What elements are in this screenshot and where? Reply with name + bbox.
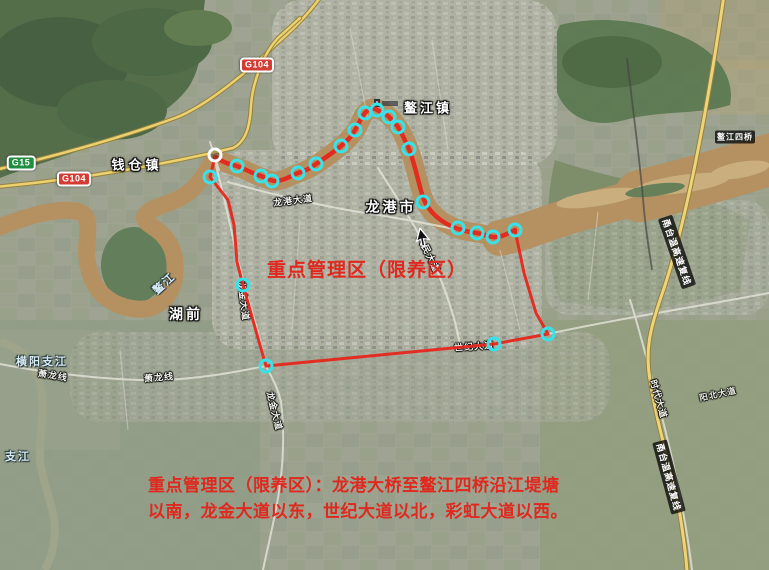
place-label-longgang: 龙港市 [366,197,417,217]
place-label-qiancang: 钱仓镇 [111,155,162,174]
map-viewport: 龙港大道 人民大道 世纪大道 萧龙线 萧龙线 龙金大道 龙金大道 时代大道 阳北… [0,0,769,570]
bottom-annotation: 重点管理区（限养区）：龙港大桥至鳌江四桥沿江堤塘 以南，龙金大道以东，世纪大道以… [148,473,568,525]
g104-shield-west: G104 [57,172,91,187]
water-label-hengyang: 横阳支江 [16,353,68,369]
place-label-aojiang: 鳌江镇 [404,98,452,117]
water-label-aojiang-river: 鳌江 [149,268,179,297]
place-label-huqian: 湖前 [169,304,203,324]
g104-shield-north: G104 [240,58,274,73]
bottom-annotation-line1: 重点管理区（限养区）：龙港大桥至鳌江四桥沿江堤塘 [148,473,568,499]
hand-cursor [414,228,432,248]
zone-annotation: 重点管理区（限养区） [267,255,467,282]
g15-shield: G15 [7,156,36,171]
water-label-zhijiang: 支江 [5,448,31,464]
bottom-annotation-line2: 以南，龙金大道以东，世纪大道以北，彩虹大道以西。 [148,499,568,525]
